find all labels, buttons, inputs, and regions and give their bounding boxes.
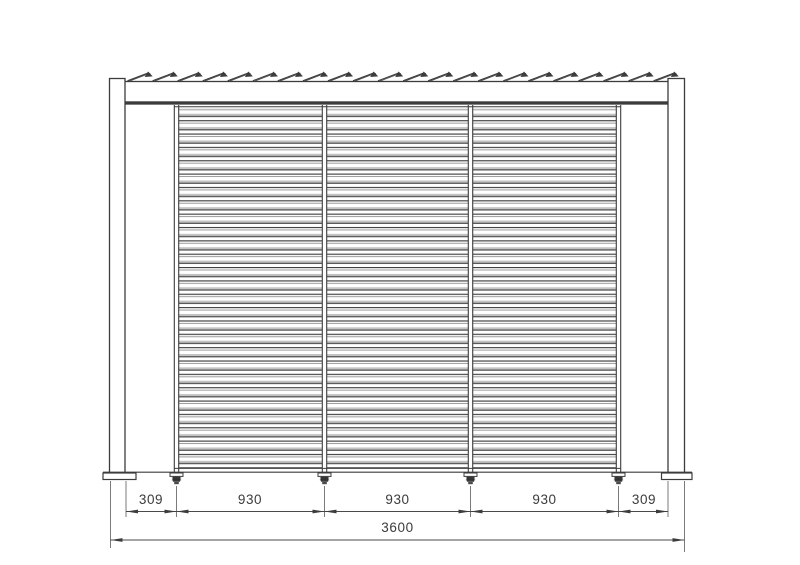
louver-panel-3 [473, 108, 617, 468]
dim-label-bay-3: 930 [532, 493, 556, 507]
elevation-drawing [0, 0, 800, 565]
technical-drawing-canvas: 309 930 930 930 309 3600 [0, 0, 800, 565]
dim-label-bay-1: 930 [238, 493, 262, 507]
dim-label-left-offset: 309 [139, 493, 163, 507]
dim-label-total-width: 3600 [381, 521, 413, 535]
louver-panel-1 [179, 108, 323, 468]
right-post [662, 79, 693, 480]
dim-label-bay-2: 930 [385, 493, 409, 507]
leveling-feet [170, 473, 625, 484]
right-post-base-plate [662, 473, 693, 480]
roof-louvers [128, 72, 679, 82]
dim-label-right-offset: 309 [632, 493, 656, 507]
ground-line [103, 468, 692, 472]
header-beam [125, 82, 670, 107]
louver-panel-2 [327, 108, 469, 468]
left-post [103, 79, 136, 480]
left-post-base-plate [103, 473, 136, 480]
